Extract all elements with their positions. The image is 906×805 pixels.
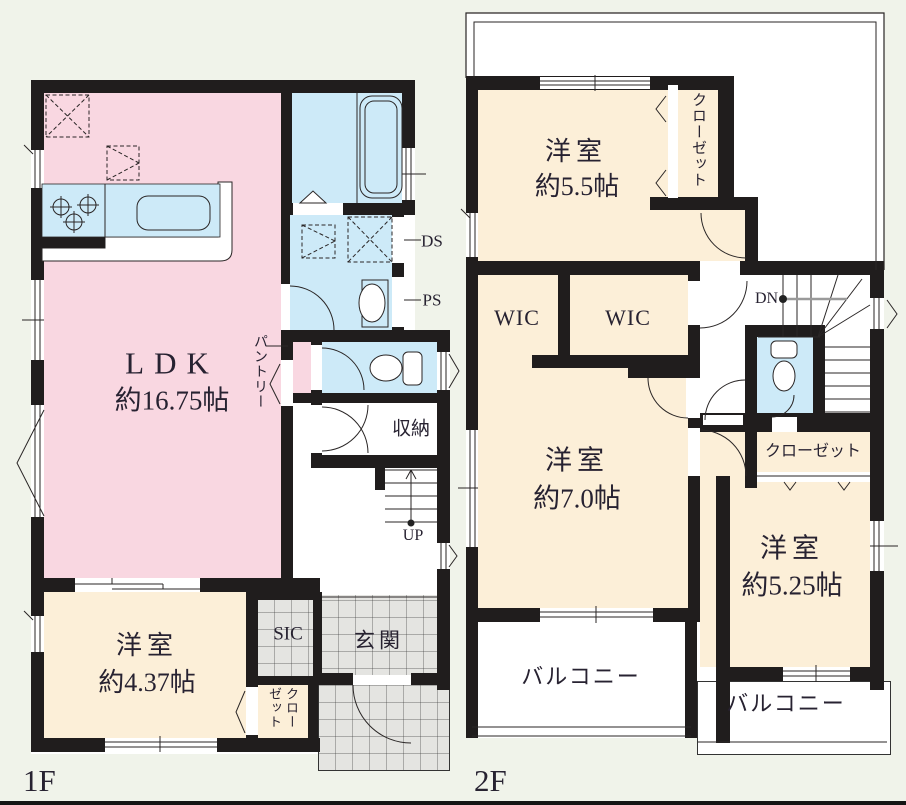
- wall: [31, 80, 415, 93]
- wall: [281, 330, 448, 342]
- window: [31, 280, 44, 360]
- bedroom-1f-name-label: 洋室: [116, 633, 178, 659]
- door-sliding-ldk: [75, 578, 200, 592]
- wall: [718, 76, 734, 205]
- balcony-b-label: バルコニー: [726, 693, 846, 715]
- door-closet-1f: [246, 687, 258, 735]
- wall: [745, 432, 757, 488]
- window: [105, 738, 217, 752]
- bedroom-c-size-label: 約5.25帖: [741, 573, 842, 600]
- wall: [308, 683, 318, 738]
- room-bedroom-a-nook: [653, 210, 747, 263]
- ds-label: DS: [421, 233, 443, 250]
- balcony-door: [540, 608, 653, 622]
- bedroom-1f-size-label: 約4.37帖: [98, 670, 196, 696]
- wall: [745, 197, 758, 263]
- window: [540, 77, 650, 89]
- floor1-title: 1F: [23, 765, 56, 796]
- stairs-up-label: UP: [403, 528, 423, 544]
- door-nook: [700, 261, 740, 275]
- entrance-label: 玄関: [354, 631, 404, 652]
- window: [466, 430, 478, 547]
- wall: [322, 455, 448, 468]
- entrance-porch: [318, 685, 450, 771]
- wall: [688, 273, 700, 281]
- room-bathroom: [290, 93, 405, 205]
- door-entrance: [353, 675, 411, 685]
- closet-1f-label: クローゼット: [264, 687, 300, 739]
- wic-b-label: WIC: [605, 307, 651, 329]
- door-wic-b: [688, 281, 700, 325]
- window: [402, 148, 415, 200]
- room-toilet-1f: [318, 340, 438, 395]
- wall: [281, 393, 448, 403]
- room-washroom: [288, 205, 397, 332]
- room-toilet-2f: [757, 337, 813, 420]
- door-hall-2f: [703, 415, 743, 425]
- duct-ps: [392, 277, 404, 327]
- wall: [281, 403, 293, 593]
- window: [437, 543, 450, 569]
- balcony-door: [783, 667, 850, 681]
- wall: [813, 325, 825, 425]
- wall: [685, 622, 697, 738]
- wall: [246, 592, 322, 600]
- window: [870, 298, 884, 329]
- door-toilet-2f: [772, 417, 797, 432]
- door-storage: [311, 405, 322, 453]
- wall: [688, 325, 700, 378]
- floor2-title: 2F: [474, 765, 507, 796]
- wall: [745, 325, 757, 425]
- door-bedroom-b: [686, 378, 700, 418]
- pantry-label: パントリー: [251, 334, 268, 422]
- bedroom-c-name-label: 洋室: [760, 536, 824, 563]
- bedroom-a-name-label: 洋室: [545, 139, 607, 165]
- duct-ds: [392, 217, 404, 263]
- wall: [558, 273, 570, 359]
- window: [31, 616, 44, 652]
- door-hall: [375, 490, 385, 532]
- wall: [688, 478, 700, 608]
- wall: [411, 673, 437, 685]
- wall: [281, 88, 292, 205]
- window: [466, 213, 478, 257]
- window: [31, 405, 44, 517]
- room-bedroom-1f: [44, 580, 258, 740]
- bedroom-b-size-label: 約7.0帖: [533, 486, 621, 513]
- balcony-a-label: バルコニー: [521, 666, 641, 688]
- storage-label: 収納: [392, 420, 430, 439]
- wall: [466, 261, 884, 275]
- ldk-name-label: LDK: [125, 348, 219, 379]
- ps-label: PS: [423, 292, 442, 309]
- page-bottom-border: [0, 801, 906, 805]
- door-bedroom-c: [688, 428, 700, 476]
- door-closet-b: [757, 472, 870, 482]
- window: [437, 352, 450, 390]
- bedroom-b-name-label: 洋室: [545, 448, 609, 475]
- wall: [466, 622, 478, 738]
- ldk-size-label: 約16.75帖: [115, 388, 230, 415]
- closet-a-label: クローゼット: [689, 92, 706, 200]
- closet-b-label: クローゼット: [765, 444, 861, 460]
- wall: [628, 365, 688, 378]
- wic-a-label: WIC: [494, 307, 540, 329]
- window: [870, 521, 884, 571]
- stairs-down-label: DN: [755, 291, 778, 307]
- door-pantry: [281, 360, 293, 406]
- bedroom-a-size-label: 約5.5帖: [535, 174, 620, 200]
- window: [31, 150, 44, 188]
- door-bath: [293, 203, 343, 215]
- door-washroom: [281, 284, 290, 330]
- wall: [313, 595, 322, 680]
- door-closet-a: [668, 85, 678, 198]
- floorplan-canvas: LDK 約16.75帖 パントリー 収納 UP SIC 玄関 洋室 約4.37帖…: [0, 0, 906, 805]
- wall: [322, 673, 353, 685]
- door-toilet-1f: [311, 345, 322, 390]
- balcony-a-floor: [466, 690, 697, 738]
- sic-label: SIC: [273, 625, 303, 644]
